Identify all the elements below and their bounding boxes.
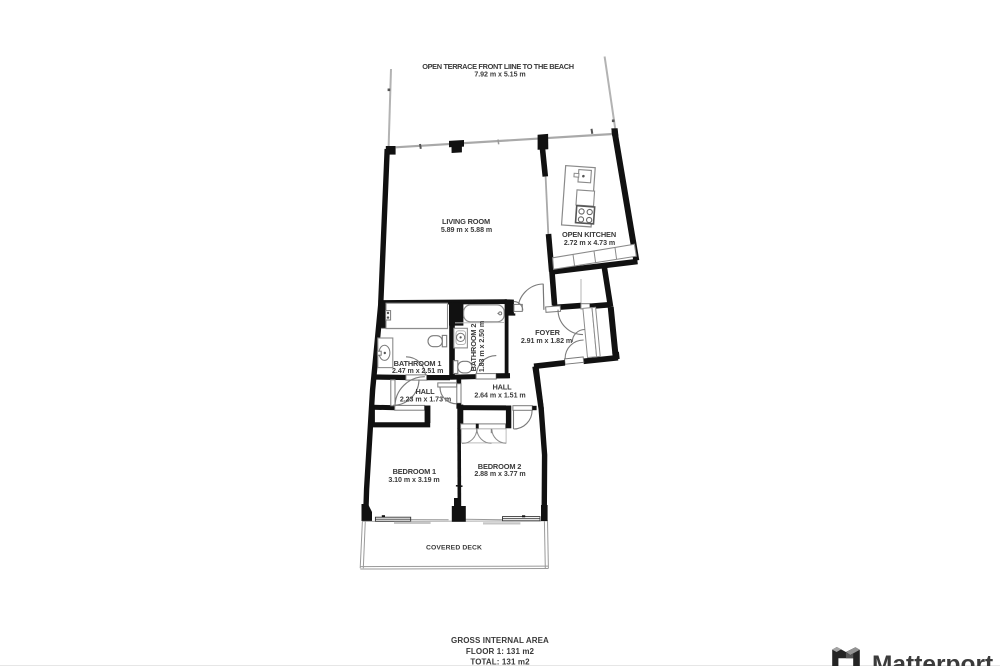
- svg-text:FLOOR 1: 131 m2: FLOOR 1: 131 m2: [466, 647, 535, 656]
- svg-text:2.47 m x 2.51 m: 2.47 m x 2.51 m: [392, 367, 443, 375]
- svg-text:1.83 m x 2.50 m: 1.83 m x 2.50 m: [478, 321, 486, 372]
- svg-text:3.10 m x 3.19 m: 3.10 m x 3.19 m: [388, 476, 439, 484]
- svg-text:FOYER: FOYER: [535, 328, 561, 337]
- svg-text:2.88 m x 3.77 m: 2.88 m x 3.77 m: [474, 470, 525, 478]
- svg-text:COVERED DECK: COVERED DECK: [426, 545, 482, 552]
- svg-text:LIVING ROOM: LIVING ROOM: [442, 217, 490, 226]
- svg-text:TOTAL: 131 m2: TOTAL: 131 m2: [470, 658, 530, 666]
- svg-text:2.64 m x 1.51 m: 2.64 m x 1.51 m: [474, 391, 525, 399]
- svg-text:7.92 m x 5.15 m: 7.92 m x 5.15 m: [474, 71, 525, 79]
- svg-text:5.89 m x 5.88 m: 5.89 m x 5.88 m: [441, 226, 492, 234]
- svg-text:OPEN KITCHEN: OPEN KITCHEN: [562, 230, 616, 239]
- svg-text:Matterport: Matterport: [872, 651, 993, 666]
- svg-text:2.72 m x 4.73 m: 2.72 m x 4.73 m: [564, 239, 615, 247]
- svg-text:HALL: HALL: [492, 383, 512, 392]
- svg-text:BEDROOM 1: BEDROOM 1: [393, 467, 436, 476]
- svg-text:2.91 m x 1.82 m: 2.91 m x 1.82 m: [521, 337, 572, 345]
- svg-text:HALL: HALL: [415, 387, 435, 396]
- svg-text:GROSS INTERNAL AREA: GROSS INTERNAL AREA: [451, 636, 549, 645]
